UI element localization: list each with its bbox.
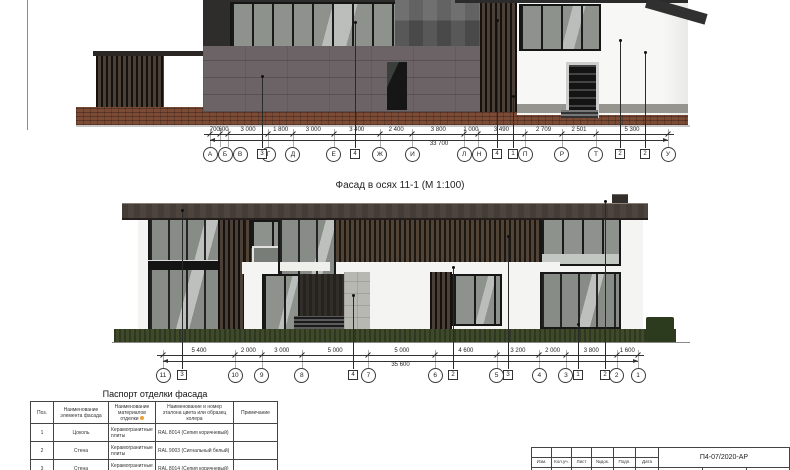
entry-steps bbox=[561, 110, 598, 118]
material-leader-line bbox=[508, 236, 509, 369]
dimension-value: 3 000 bbox=[306, 127, 321, 134]
axis-bubble: Н bbox=[472, 147, 487, 162]
total-arrow-left bbox=[210, 138, 215, 142]
finish-table-header: Примечание bbox=[234, 402, 278, 424]
material-leader-line bbox=[620, 40, 621, 148]
material-leader-dot bbox=[507, 235, 510, 238]
lower-window bbox=[452, 274, 502, 326]
finish-table-row: 3СтенаКерамогранитные плитыRAL 8014 (Сеп… bbox=[31, 460, 278, 470]
material-callout-square: 3 bbox=[503, 370, 513, 380]
material-leader-dot bbox=[512, 95, 515, 98]
dimension-value: 1 800 bbox=[273, 127, 288, 134]
tall-window-mullion bbox=[280, 262, 330, 271]
lower-big-window bbox=[540, 272, 621, 329]
dimension-value: 5 000 bbox=[394, 348, 409, 355]
axis-bubble: 10 bbox=[228, 368, 243, 383]
grey-panel-wall bbox=[344, 272, 370, 330]
ground-shadow bbox=[76, 125, 690, 127]
material-leader-line bbox=[182, 210, 183, 369]
finish-table-cell: 3 bbox=[31, 460, 54, 470]
finish-table-row: 2СтенаКерамогранитные плитыRAL 9003 (Сиг… bbox=[31, 442, 278, 460]
axis-bubble: 4 bbox=[532, 368, 547, 383]
dimension-line bbox=[157, 355, 644, 356]
material-leader-dot bbox=[604, 200, 607, 203]
axis-bubble: У bbox=[661, 147, 676, 162]
material-callout-square: 1 bbox=[573, 370, 583, 380]
revision-header-cell: Подп. bbox=[614, 458, 636, 468]
finish-table-title: Паспорт отделки фасада bbox=[60, 389, 250, 399]
dimension-line bbox=[204, 134, 674, 135]
finish-table-cell: Стена bbox=[54, 442, 109, 460]
material-leader-line bbox=[353, 295, 354, 369]
floor-slab-edge bbox=[148, 260, 218, 270]
finish-table-cell: RAL 8014 (Сепия коричневый) bbox=[156, 460, 234, 470]
finish-table-cell: Стена bbox=[54, 460, 109, 470]
finish-table-header: Наименование и номер эталона цвета или о… bbox=[156, 402, 234, 424]
material-leader-dot bbox=[181, 209, 184, 212]
axis-bubble: Т bbox=[588, 147, 603, 162]
finish-table-header: Наименование элемента фасада bbox=[54, 402, 109, 424]
dimension-value: 1 000 bbox=[463, 127, 478, 134]
finish-table-cell: Керамогранитные плиты bbox=[109, 460, 156, 470]
material-leader-line bbox=[262, 76, 263, 148]
dimension-value: 1 600 bbox=[620, 348, 635, 355]
dimension-value: 2 000 bbox=[545, 348, 560, 355]
dimension-value: 2 000 bbox=[241, 348, 256, 355]
dimension-value: 5 400 bbox=[192, 348, 207, 355]
total-dimension-value: 33 700 bbox=[430, 141, 448, 148]
material-callout-square: 4 bbox=[348, 370, 358, 380]
axis-bubble: 2 bbox=[609, 368, 624, 383]
ribbon-windows bbox=[519, 4, 601, 51]
dimension-value: 5 000 bbox=[328, 348, 343, 355]
total-arrow-right bbox=[663, 138, 668, 142]
axis-bubble: 6 bbox=[428, 368, 443, 383]
finish-table-row: 1ЦокольКерамогранитные плитыRAL 8014 (Се… bbox=[31, 424, 278, 442]
dimension-value: 3 400 bbox=[349, 127, 364, 134]
grey-ceramic-wall bbox=[203, 46, 480, 112]
roof-band bbox=[122, 203, 648, 220]
lower-slat-pier bbox=[430, 272, 452, 330]
material-leader-line bbox=[513, 96, 514, 148]
dimension-value: 3 000 bbox=[274, 348, 289, 355]
grass-strip bbox=[114, 329, 676, 342]
axis-bubble: Р bbox=[554, 147, 569, 162]
dimension-value: 3 800 bbox=[584, 348, 599, 355]
material-leader-dot bbox=[352, 294, 355, 297]
material-leader-line bbox=[578, 324, 579, 369]
material-callout-square: 3 bbox=[177, 370, 187, 380]
material-callout-square: 4 bbox=[492, 149, 502, 159]
material-leader-dot bbox=[619, 39, 622, 42]
finish-table-header: Наименование материалов отделки bbox=[109, 402, 156, 424]
axis-bubble: 7 bbox=[361, 368, 376, 383]
elevation-title: Фасад в осях 11-1 (М 1:100) bbox=[280, 180, 520, 191]
material-callout-square: 2 bbox=[600, 370, 610, 380]
slat-pier-left bbox=[218, 217, 244, 330]
finish-table-cell: RAL 8014 (Сепия коричневый) bbox=[156, 424, 234, 442]
material-leader-dot bbox=[496, 19, 499, 22]
revision-header-cell: Кол.уч. bbox=[552, 458, 572, 468]
dimension-value: 2 501 bbox=[571, 127, 586, 134]
material-callout-square: 4 bbox=[350, 149, 360, 159]
finish-table-cell: RAL 9003 (Сигнальный белый) bbox=[156, 442, 234, 460]
axis-bubble: Е bbox=[326, 147, 341, 162]
material-leader-dot bbox=[354, 21, 357, 24]
revision-header-cell: Лист bbox=[572, 458, 592, 468]
small-window bbox=[387, 62, 407, 110]
dimension-value: 4 600 bbox=[458, 348, 473, 355]
upper-window-b bbox=[540, 218, 621, 266]
axis-bubble: 5 bbox=[489, 368, 504, 383]
dimension-value: 3 800 bbox=[431, 127, 446, 134]
finish-table-cell bbox=[234, 442, 278, 460]
finish-table-cell: Керамогранитные плиты bbox=[109, 442, 156, 460]
dimension-value: 2 400 bbox=[389, 127, 404, 134]
axis-bubble: 1 bbox=[631, 368, 646, 383]
comment-marker-icon bbox=[140, 416, 144, 420]
material-leader-line bbox=[497, 20, 498, 148]
material-leader-line bbox=[645, 52, 646, 148]
finish-table-cell: Цоколь bbox=[54, 424, 109, 442]
material-leader-dot bbox=[452, 266, 455, 269]
finish-table-cell: 2 bbox=[31, 442, 54, 460]
material-leader-dot bbox=[261, 75, 264, 78]
material-callout-square: 2 bbox=[448, 370, 458, 380]
dimension-value: 600 bbox=[219, 127, 229, 134]
axis-bubble: 11 bbox=[156, 368, 171, 383]
ground-line bbox=[112, 342, 690, 343]
left-glazing bbox=[148, 217, 222, 336]
sheet-frame-line bbox=[27, 0, 28, 130]
entrance-recess bbox=[300, 274, 344, 316]
dimension-value: 2 709 bbox=[536, 127, 551, 134]
dimension-value: 3 000 bbox=[241, 127, 256, 134]
revision-header-cell: Изм. bbox=[532, 458, 552, 468]
material-callout-square: 3 bbox=[257, 149, 267, 159]
axis-bubble: Ж bbox=[372, 147, 387, 162]
axis-bubble: Л bbox=[457, 147, 472, 162]
material-callout-square: 2 bbox=[640, 149, 650, 159]
total-arrow-left bbox=[163, 359, 168, 363]
material-leader-line bbox=[605, 201, 606, 369]
axis-bubble: Б bbox=[218, 147, 233, 162]
finish-table-cell bbox=[234, 460, 278, 470]
cladding-patchwork bbox=[395, 0, 480, 46]
bush bbox=[646, 317, 674, 342]
total-dimension-value: 35 600 bbox=[391, 362, 409, 369]
material-leader-dot bbox=[644, 51, 647, 54]
revision-empty-row: П4-07/2020-АР bbox=[532, 448, 790, 458]
axis-bubble: 8 bbox=[294, 368, 309, 383]
material-leader-dot bbox=[577, 323, 580, 326]
finish-table-header-row: Поз.Наименование элемента фасадаНаименов… bbox=[31, 402, 278, 424]
axis-bubble: П bbox=[518, 147, 533, 162]
dimension-value: 5 300 bbox=[624, 127, 639, 134]
pergola-slat-wall bbox=[96, 56, 164, 107]
axis-bubble: 9 bbox=[254, 368, 269, 383]
title-block: П4-07/2020-АР Изм.Кол.уч.Лист№док.Подп.Д… bbox=[531, 447, 790, 470]
axis-bubble: И bbox=[405, 147, 420, 162]
revision-header-cell: №док. bbox=[592, 458, 614, 468]
finish-table-header: Поз. bbox=[31, 402, 54, 424]
document-number: П4-07/2020-АР bbox=[659, 448, 790, 468]
dimension-value: 3 200 bbox=[510, 348, 525, 355]
axis-bubble: Д bbox=[285, 147, 300, 162]
finish-passport-table: Поз.Наименование элемента фасадаНаименов… bbox=[30, 401, 278, 470]
finish-table-cell: 1 bbox=[31, 424, 54, 442]
axis-bubble: А bbox=[203, 147, 218, 162]
drawing-sheet: 7006003 0001 8003 0003 4002 4003 8001 00… bbox=[0, 0, 790, 470]
material-callout-square: 2 bbox=[615, 149, 625, 159]
axis-bubble: В bbox=[233, 147, 248, 162]
finish-table-cell: Керамогранитные плиты bbox=[109, 424, 156, 442]
material-callout-square: 1 bbox=[508, 149, 518, 159]
axis-bubble: 3 bbox=[558, 368, 573, 383]
grey-base-course bbox=[517, 104, 688, 113]
finish-table-cell bbox=[234, 424, 278, 442]
material-leader-line bbox=[355, 22, 356, 148]
total-arrow-right bbox=[633, 359, 638, 363]
second-floor-glazing bbox=[230, 2, 397, 48]
material-leader-line bbox=[453, 267, 454, 369]
revision-header-cell: Дата bbox=[636, 458, 659, 468]
